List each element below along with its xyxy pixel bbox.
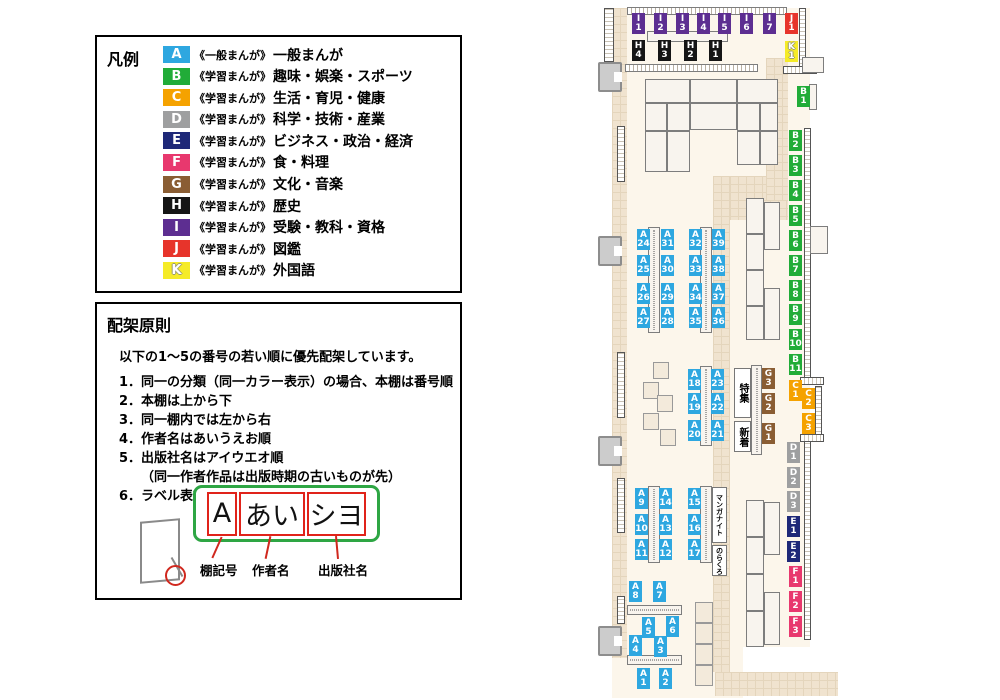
shelf — [746, 198, 764, 234]
shelf-label-A2: A2 — [659, 668, 672, 689]
door — [598, 626, 622, 656]
floor-path — [715, 672, 838, 696]
shelf-label-A21: A21 — [711, 420, 724, 441]
shelf-label-A16: A16 — [688, 514, 701, 535]
shelf — [645, 131, 667, 172]
shelf — [751, 365, 762, 455]
shelf — [667, 131, 690, 172]
shelf-label-I5: I5 — [718, 13, 731, 34]
shelf-label-A26: A26 — [637, 283, 650, 304]
table — [695, 665, 713, 686]
shelf-label-A3: A3 — [654, 636, 667, 657]
shelf-label-A15: A15 — [688, 488, 701, 509]
shelf — [690, 79, 737, 103]
wall — [604, 8, 614, 62]
shelf-label-A5: A5 — [642, 617, 655, 638]
shelf-label-A37: A37 — [712, 283, 725, 304]
shelf-label-K1: K1 — [785, 41, 798, 62]
wall — [617, 596, 625, 624]
shelf-label-A28: A28 — [661, 307, 674, 328]
shelf-label-H3: H3 — [658, 40, 671, 61]
shelf — [667, 103, 690, 131]
shelf — [746, 234, 764, 270]
shelf-label-A11: A11 — [635, 539, 648, 560]
area-label-のらくろ: のらくろ — [712, 545, 727, 576]
shelf-label-A35: A35 — [689, 307, 702, 328]
shelf-label-C2: C2 — [802, 388, 815, 409]
shelf-label-I6: I6 — [740, 13, 753, 34]
wall — [800, 377, 824, 385]
shelf — [627, 605, 682, 615]
shelf-label-B9: B9 — [789, 304, 802, 325]
shelf — [760, 103, 778, 131]
shelf-label-I1: I1 — [632, 13, 645, 34]
area-label-特集: 特集 — [734, 368, 751, 418]
shelf-label-B10: B10 — [789, 329, 802, 350]
shelf-label-A7: A7 — [653, 581, 666, 602]
shelf-label-J1: J1 — [785, 13, 798, 34]
door — [598, 236, 622, 266]
shelf-label-A27: A27 — [637, 307, 650, 328]
shelf-label-H2: H2 — [684, 40, 697, 61]
shelf-label-A18: A18 — [688, 369, 701, 390]
shelf-label-F3: F3 — [789, 616, 802, 637]
door — [598, 436, 622, 466]
shelf-label-G3: G3 — [762, 368, 775, 389]
shelf-label-A34: A34 — [689, 283, 702, 304]
shelf-label-B1: B1 — [797, 86, 810, 107]
shelf-label-A33: A33 — [689, 255, 702, 276]
wall — [815, 386, 822, 436]
shelf-label-A13: A13 — [659, 514, 672, 535]
shelf-divider — [654, 230, 655, 330]
shelf-label-B3: B3 — [789, 155, 802, 176]
wall — [617, 126, 625, 182]
floor-guide-page: 凡例 A《一般まんが》一般まんがB《学習まんが》趣味・娯楽・スポーツC《学習まん… — [0, 0, 1000, 700]
door — [598, 62, 622, 92]
wall — [804, 128, 811, 380]
shelf-label-A24: A24 — [637, 229, 650, 250]
table — [695, 644, 713, 665]
shelf — [737, 79, 778, 103]
shelf-label-A31: A31 — [661, 229, 674, 250]
table — [657, 395, 673, 412]
shelf — [690, 103, 737, 130]
shelf-divider — [654, 489, 655, 560]
shelf — [700, 486, 712, 563]
shelf — [746, 306, 764, 340]
shelf-label-B2: B2 — [789, 130, 802, 151]
shelf-label-H1: H1 — [709, 40, 722, 61]
shelf — [764, 288, 780, 340]
shelf-label-B7: B7 — [789, 255, 802, 276]
shelf-label-G2: G2 — [762, 393, 775, 414]
table — [643, 413, 659, 430]
shelf-divider — [630, 660, 679, 661]
shelf — [737, 131, 760, 165]
shelf — [625, 64, 758, 72]
area-label-マンガナイト: マンガナイト — [712, 487, 727, 543]
shelf — [746, 500, 764, 537]
table — [695, 602, 713, 623]
shelf — [760, 131, 778, 165]
shelf-label-F1: F1 — [789, 566, 802, 587]
floor-path — [612, 8, 627, 658]
floor-map: I1I2I3I4I5I6I7J1K1H4H3H2H1A24A31A32A39A2… — [0, 0, 1000, 700]
shelf — [746, 574, 764, 611]
shelf-label-A8: A8 — [629, 581, 642, 602]
shelf-label-E2: E2 — [787, 541, 800, 562]
shelf-label-H4: H4 — [632, 40, 645, 61]
wall — [804, 440, 811, 640]
shelf-label-A30: A30 — [661, 255, 674, 276]
shelf — [809, 84, 817, 110]
shelf — [764, 502, 780, 555]
shelf-label-A19: A19 — [688, 393, 701, 414]
shelf — [810, 226, 828, 254]
shelf-label-I2: I2 — [654, 13, 667, 34]
shelf-label-A1: A1 — [637, 668, 650, 689]
shelf-label-A20: A20 — [688, 420, 701, 441]
shelf-label-A29: A29 — [661, 283, 674, 304]
shelf-label-B5: B5 — [789, 205, 802, 226]
shelf-label-A12: A12 — [659, 539, 672, 560]
wall — [800, 434, 824, 442]
shelf-label-B6: B6 — [789, 230, 802, 251]
shelf-label-A22: A22 — [711, 393, 724, 414]
shelf — [746, 537, 764, 574]
shelf — [746, 611, 764, 647]
shelf-label-A10: A10 — [635, 514, 648, 535]
shelf-label-D1: D1 — [787, 442, 800, 463]
shelf-label-A32: A32 — [689, 229, 702, 250]
shelf-label-G1: G1 — [762, 423, 775, 444]
shelf-label-A9: A9 — [635, 488, 648, 509]
shelf-label-I4: I4 — [697, 13, 710, 34]
shelf-label-A36: A36 — [712, 307, 725, 328]
shelf-label-D3: D3 — [787, 491, 800, 512]
table — [660, 429, 676, 446]
table — [653, 362, 669, 379]
wall — [617, 352, 625, 418]
shelf — [645, 103, 667, 131]
shelf-label-A39: A39 — [712, 229, 725, 250]
shelf — [746, 270, 764, 306]
shelf-label-A38: A38 — [712, 255, 725, 276]
table — [695, 623, 713, 644]
wall — [617, 478, 625, 533]
shelf-label-A17: A17 — [688, 539, 701, 560]
shelf-label-A4: A4 — [629, 635, 642, 656]
shelf — [802, 57, 824, 73]
shelf-label-D2: D2 — [787, 467, 800, 488]
shelf-divider — [630, 610, 679, 611]
shelf-label-B4: B4 — [789, 180, 802, 201]
shelf-divider — [756, 368, 757, 452]
shelf-divider — [706, 369, 707, 443]
shelf-label-C3: C3 — [802, 413, 815, 434]
shelf-label-C1: C1 — [789, 380, 802, 401]
area-label-新着: 新着 — [734, 421, 751, 452]
shelf — [764, 592, 780, 645]
shelf-label-A6: A6 — [666, 616, 679, 637]
shelf-label-B8: B8 — [789, 280, 802, 301]
shelf-divider — [706, 489, 707, 560]
shelf — [737, 103, 760, 131]
shelf-divider — [706, 230, 707, 330]
shelf-label-A23: A23 — [711, 369, 724, 390]
shelf-label-I3: I3 — [676, 13, 689, 34]
shelf-label-F2: F2 — [789, 591, 802, 612]
shelf-label-B11: B11 — [789, 354, 802, 375]
shelf-label-I7: I7 — [763, 13, 776, 34]
shelf — [764, 202, 780, 250]
shelf-label-A25: A25 — [637, 255, 650, 276]
shelf-label-E1: E1 — [787, 516, 800, 537]
shelf — [645, 79, 690, 103]
shelf-label-A14: A14 — [659, 488, 672, 509]
